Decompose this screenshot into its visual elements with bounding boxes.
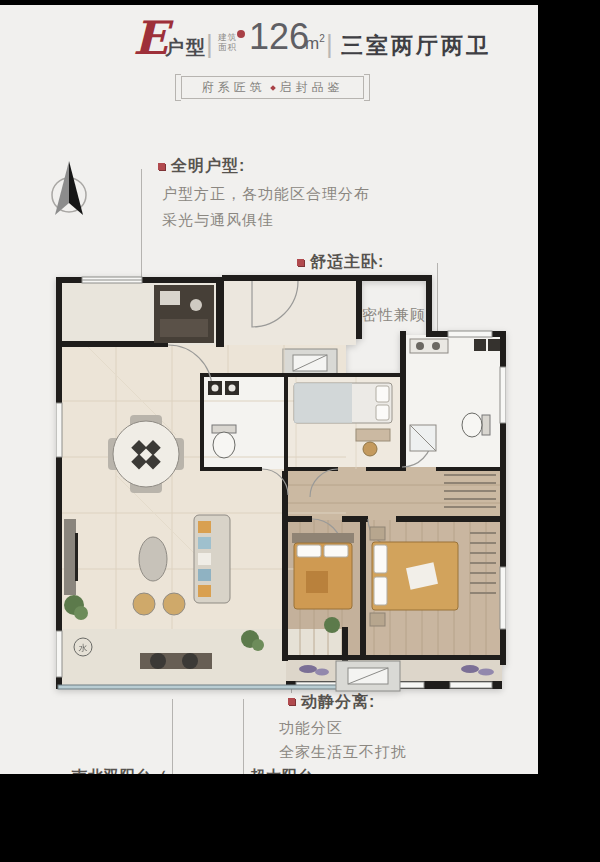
badge-text-right: 启封品鉴 — [280, 79, 344, 96]
bottom-letterbox-bar — [0, 774, 600, 862]
coffee-table — [139, 537, 167, 581]
leader-line-bottom-right — [243, 699, 244, 774]
area-unit-sup: 2 — [319, 33, 325, 44]
rooms-label: 三室两厅两卫 — [341, 31, 491, 61]
annotation-zones-title: 动静分离: — [301, 692, 375, 713]
annotation-bright-line1: 户型方正，各功能区合理分布 — [162, 185, 370, 204]
north-arrow-icon — [46, 157, 92, 223]
slogan-badge: 府系匠筑 启封品鉴 — [181, 76, 364, 99]
annotation-zones-line2: 全家生活互不打扰 — [279, 743, 407, 762]
area-value: 126 — [249, 19, 309, 55]
header-divider-2: | — [326, 29, 333, 60]
annotation-zones-line1: 功能分区 — [279, 719, 343, 738]
area-unit: m2 — [305, 33, 325, 54]
right-letterbox-bar — [538, 0, 600, 862]
unit-type-label: 户型 — [165, 35, 207, 61]
bedroom2-furniture — [292, 533, 354, 609]
armchair — [133, 593, 155, 615]
trademark-dot-icon — [237, 30, 245, 38]
wardrobe-hangers — [470, 533, 496, 593]
clipped-left-text: 南北双阳台（ — [72, 767, 168, 774]
leader-line-balcony — [172, 699, 173, 774]
unit-letter: E — [133, 15, 168, 61]
area-caption: 建筑 面积 — [218, 32, 237, 52]
area-unit-m: m — [305, 34, 319, 53]
annotation-master-title: 舒适主卧: — [310, 252, 384, 273]
red-square-bullet-icon — [297, 259, 304, 266]
annotation-bright-line2: 采光与通风俱佳 — [162, 211, 274, 230]
red-square-bullet-icon — [288, 698, 295, 705]
sofa — [194, 515, 230, 603]
red-square-bullet-icon — [158, 163, 165, 170]
area-caption-bottom: 面积 — [218, 42, 237, 52]
annotation-bright-title: 全明户型: — [171, 156, 245, 177]
area-caption-top: 建筑 — [218, 32, 237, 42]
poster-content: E 户型 | 建筑 面积 126 m2 | 三室两厅两卫 府系匠筑 启封品鉴 全… — [0, 5, 539, 774]
tv-cabinet — [64, 519, 78, 595]
annotation-balcony-clipped: 南北双阳台（ — [60, 767, 168, 774]
red-diamond-dot-icon — [270, 85, 276, 91]
water-meter-label: 水 — [79, 643, 88, 653]
annotation-right-clipped: 超大阳台 — [250, 767, 314, 774]
kitchen-counter — [154, 285, 214, 343]
armchair — [163, 593, 185, 615]
leader-line-bright — [141, 169, 142, 281]
foyer-floor — [222, 279, 356, 345]
floor-plan: 水 — [56, 275, 506, 695]
header-divider: | — [206, 29, 213, 60]
balcony-rail — [58, 685, 346, 689]
badge-text-left: 府系匠筑 — [202, 79, 266, 96]
top-letterbox-bar — [0, 0, 600, 5]
